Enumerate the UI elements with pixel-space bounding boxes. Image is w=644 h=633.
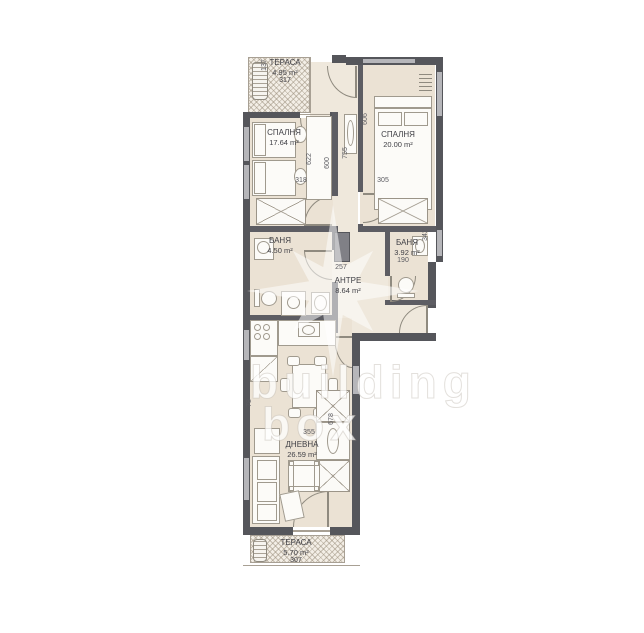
stove-burner-1 <box>254 324 261 331</box>
label-hall: АНТРЕ 8.64 m² <box>328 276 368 295</box>
label-terrace-bottom: ТЕРАСА 5.70 m² 307 <box>270 538 322 566</box>
door-leaf-bedroom-left <box>304 224 332 226</box>
label-bedroom-left: СПАЛНЯ 17.64 m² <box>258 128 310 147</box>
bedroom-left-name: СПАЛНЯ <box>258 128 310 138</box>
hall-name: АНТРЕ <box>328 276 368 286</box>
wall-vestibule-stub <box>332 55 346 63</box>
coffee-table-inner <box>293 465 315 487</box>
terrace-door-sill <box>300 114 330 115</box>
ac-unit-bottom-icon <box>253 539 267 562</box>
table-leg-1 <box>289 461 294 466</box>
door-leaf-terrace-bottom <box>327 491 329 527</box>
bedroom-right-area: 20.00 m² <box>370 140 426 149</box>
hall-area: 8.64 m² <box>328 286 368 295</box>
dim-bedroom-right-height: 606 <box>361 109 371 129</box>
label-living: ДНЕВНА 26.59 m² <box>276 440 328 459</box>
dim-living-height: 678 <box>327 409 337 429</box>
dim-living-width: 355 <box>298 428 320 438</box>
wall-terrace-top-a <box>243 112 300 118</box>
terrace-top-number: 317 <box>262 77 308 86</box>
window-bedroom-right-top <box>363 59 415 63</box>
pillow-2 <box>254 162 266 194</box>
dim-bedroom-left-width: 318 <box>290 176 312 186</box>
living-name: ДНЕВНА <box>276 440 328 450</box>
terrace-bottom-name: ТЕРАСА <box>270 538 322 548</box>
door-leaf-vestibule <box>355 66 357 98</box>
window-living <box>244 458 249 500</box>
dim-shaft-width: 257 <box>330 263 352 273</box>
window-bath-right <box>437 230 442 256</box>
wardrobe-bedroom-left <box>256 198 306 225</box>
terrace-bottom-number: 307 <box>270 557 322 566</box>
sofa-cushion-3 <box>257 504 277 521</box>
stove-burner-2 <box>263 324 270 331</box>
wall-bedroom-left-bath <box>250 226 338 232</box>
dim-corridor-height: 755 <box>341 143 351 163</box>
living-area: 26.59 m² <box>276 450 328 459</box>
pillow-4 <box>404 112 428 126</box>
dim-desk-right: 600 <box>323 153 333 173</box>
terrace-bottom-area: 5.70 m² <box>270 548 322 557</box>
floor-plan-canvas: building box ТЕРАСА 4.95 m² 317 СПАЛНЯ 1… <box>0 0 644 633</box>
headboard-shelf <box>374 96 432 108</box>
window-bedroom-left-2 <box>244 165 249 199</box>
window-bedroom-right <box>437 72 442 116</box>
dim-closet-right: 342 <box>421 225 431 245</box>
wardrobe-bedroom-right <box>378 198 428 224</box>
stove-burner-3 <box>254 333 261 340</box>
label-bath-left: БАНЯ 4.50 m² <box>256 236 304 255</box>
dim-desk-left: 622 <box>305 149 315 169</box>
living-wardrobe-2 <box>316 460 350 492</box>
sofa-cushion-2 <box>257 482 277 502</box>
radiator-fins-icon <box>419 72 432 94</box>
table-leg-2 <box>314 461 319 466</box>
stove-burner-4 <box>263 333 270 340</box>
window-bedroom-left-1 <box>244 127 249 161</box>
table-leg-4 <box>314 486 319 491</box>
dim-bedroom-right-width: 305 <box>372 176 394 186</box>
door-leaf-entrance <box>426 305 428 333</box>
dim-living-niche: 78 <box>245 395 255 411</box>
dim-bath-right-width: 190 <box>394 256 412 266</box>
dim-terrace-top-height: 137 <box>260 56 270 74</box>
bath-left-name: БАНЯ <box>256 236 304 246</box>
bedroom-left-area: 17.64 m² <box>258 138 310 147</box>
bath-left-area: 4.50 m² <box>256 246 304 255</box>
terrace-edge-line <box>310 57 311 113</box>
kitchen-sink <box>302 325 315 335</box>
wall-living-bottom-b <box>330 527 360 535</box>
label-bedroom-right: СПАЛНЯ 20.00 m² <box>370 130 426 149</box>
wall-hall-bottom <box>352 333 436 341</box>
window-kitchen <box>244 330 249 360</box>
pillow-3 <box>378 112 402 126</box>
bedroom-right-name: СПАЛНЯ <box>370 130 426 140</box>
wall-living-bottom-a <box>243 527 293 535</box>
terrace-bottom-door-sill <box>293 530 330 532</box>
sofa-cushion-1 <box>257 460 277 480</box>
